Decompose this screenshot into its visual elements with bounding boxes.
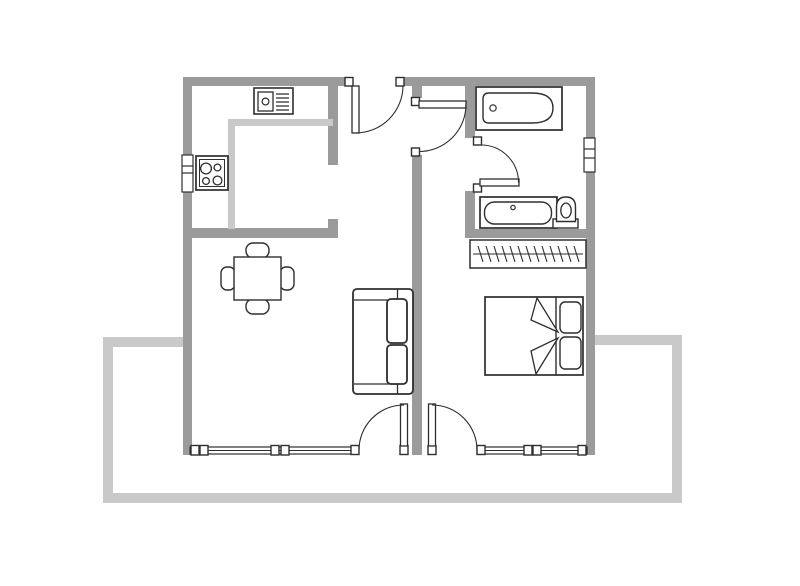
window-bedroom-post-1 <box>524 446 532 456</box>
hall-door-arc <box>419 105 466 152</box>
hall-door-jamb-top <box>412 98 420 106</box>
wall-left <box>183 77 192 455</box>
balcony-bottom-edge <box>103 493 682 503</box>
wall-middle-upper <box>412 86 422 98</box>
balcony-left-edge <box>103 337 113 503</box>
living-balcony-door-leaf <box>401 404 408 446</box>
dining-table <box>234 257 281 300</box>
bed-pillow-1 <box>560 302 581 333</box>
bedroom-balcony-door-hinge <box>428 446 436 455</box>
entrance-door-jamb-left <box>345 78 353 87</box>
bedroom-balcony-door-arc <box>432 405 477 450</box>
dining-chair-bottom <box>246 299 269 314</box>
entrance-door-leaf <box>352 86 359 133</box>
hall-door-leaf <box>419 101 466 108</box>
window-living-post-2 <box>200 446 208 456</box>
wall-top-right <box>404 77 595 86</box>
bathroom-sink-faucet <box>511 205 515 209</box>
toilet-bowl-inner <box>561 203 571 218</box>
hall-door-jamb-bottom <box>412 148 420 156</box>
bathroom-door-leaf <box>480 179 519 186</box>
wall-bathroom-left-upper <box>465 86 475 138</box>
bathtub-drain <box>490 105 496 111</box>
balcony-left-stub <box>103 337 187 347</box>
dining-chair-right <box>280 267 294 290</box>
kitchen-sink-drain <box>262 98 269 105</box>
wall-kitchen-bottom <box>183 228 338 238</box>
stove-outer <box>196 156 228 190</box>
window-living-post-4 <box>281 446 289 456</box>
balcony-right-stub <box>595 335 682 345</box>
bedroom-balcony-door-jamb <box>477 446 485 455</box>
sofa-cushion-1 <box>387 299 407 343</box>
wall-kitchen-stub <box>328 219 338 228</box>
window-living-post-3 <box>271 446 279 456</box>
window-bedroom-post-2 <box>533 446 541 456</box>
bedroom-balcony-door-leaf <box>429 404 436 446</box>
balcony-right-edge <box>672 335 682 503</box>
bathroom-door-jamb-top <box>474 137 482 145</box>
window-bathroom <box>584 138 595 172</box>
floor-plan-page <box>0 0 800 586</box>
living-balcony-door-hinge <box>400 446 408 455</box>
window-living-post-1 <box>191 446 199 456</box>
counter-top-edge <box>228 119 333 126</box>
bathroom-door-arc <box>481 145 519 183</box>
dining-chair-top <box>246 243 269 258</box>
living-balcony-door-jamb <box>351 446 359 455</box>
bathroom-sink-basin <box>485 202 552 224</box>
counter-left-edge <box>228 119 235 229</box>
entrance-door-jamb-right <box>396 78 404 87</box>
wall-right <box>586 77 595 455</box>
living-balcony-door-arc <box>359 405 404 450</box>
window-bedroom-post-3 <box>578 446 586 456</box>
wall-top-left <box>183 77 346 86</box>
floor-plan-svg <box>0 0 800 586</box>
bed-pillow-2 <box>560 337 581 369</box>
dining-chair-left <box>221 267 235 290</box>
wall-bathroom-bottom <box>465 229 595 238</box>
entrance-door-arc <box>356 86 404 134</box>
sofa-cushion-2 <box>387 345 407 384</box>
